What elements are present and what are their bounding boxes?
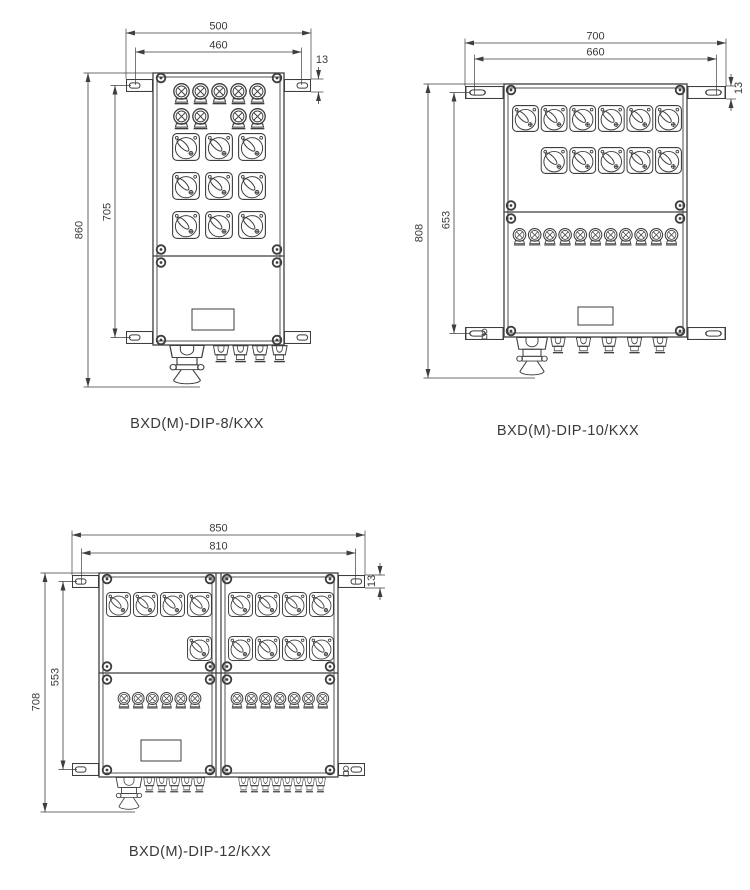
indicator-light [650, 229, 663, 245]
rotary-switch [229, 593, 253, 617]
rotary-switch [656, 106, 682, 132]
cover-bolt [223, 575, 232, 584]
indicator-light [528, 229, 541, 245]
indicator-light [132, 693, 144, 708]
cable-gland [233, 346, 248, 362]
rotary-switch [173, 173, 200, 200]
rotary-switch [188, 637, 212, 661]
diagram-bxdm-dip-12: 850 810 13 708 553 [31, 523, 386, 861]
main-cable-gland [116, 777, 142, 809]
diagram-bxdm-dip-8: 500 460 13 860 705 [74, 21, 329, 433]
dim-width-inner: 660 [586, 47, 604, 59]
enclosure-dip12 [72, 573, 364, 777]
indicator-light [174, 109, 189, 129]
rotary-switch [541, 148, 567, 174]
cable-gland [627, 338, 641, 353]
indicator-light [303, 693, 315, 708]
model-label: BXD(M)-DIP-12/KXX [129, 844, 271, 860]
dim-width-inner: 460 [209, 40, 227, 52]
dim-height-outer: 808 [414, 224, 426, 242]
rotary-switch [310, 637, 334, 661]
cable-gland [261, 778, 271, 792]
dim-width-outer: 850 [209, 523, 227, 535]
cable-gland [194, 778, 205, 792]
dim-bracket-offset: 13 [733, 82, 745, 94]
indicator-light [193, 84, 208, 104]
mounting-bracket [284, 80, 310, 92]
cable-gland [213, 346, 228, 362]
cover-bolt [326, 662, 335, 671]
dim-width-inner: 810 [209, 541, 227, 553]
cable-gland [250, 778, 260, 792]
indicator-light [274, 693, 286, 708]
cover-bolt [103, 662, 112, 671]
rotary-switch [283, 637, 307, 661]
cable-gland [272, 778, 282, 792]
indicator-light [175, 693, 187, 708]
rotary-switch [656, 148, 682, 174]
indicator-light [620, 229, 633, 245]
indicator-light [544, 229, 557, 245]
rotary-switch [239, 212, 266, 239]
cable-gland [602, 338, 616, 353]
main-cable-gland [517, 337, 548, 374]
indicator-light [604, 229, 617, 245]
cable-gland [169, 778, 180, 792]
dim-height-outer: 860 [74, 221, 86, 239]
indicator-light [212, 84, 227, 104]
cover-bolt [326, 675, 335, 684]
dim-height-inner: 653 [441, 211, 453, 229]
rotary-switch [188, 593, 212, 617]
cable-gland [551, 338, 565, 353]
indicator-light [250, 109, 265, 129]
model-label: BXD(M)-DIP-8/KXX [130, 416, 264, 432]
cable-gland [294, 778, 304, 792]
rotary-switch [173, 212, 200, 239]
indicator-light [635, 229, 648, 245]
nameplate [141, 740, 181, 761]
enclosure-body [99, 573, 338, 777]
rotary-switch [598, 106, 624, 132]
cover-bolt [326, 575, 335, 584]
mounting-bracket [338, 576, 364, 588]
indicator-light [574, 229, 587, 245]
drawing-canvas: 500 460 13 860 705 [0, 0, 750, 890]
indicator-light [193, 109, 208, 129]
rotary-switch [206, 212, 233, 239]
cable-gland [305, 778, 315, 792]
rotary-switch [134, 593, 158, 617]
indicator-light [174, 84, 189, 104]
rotary-switch [206, 134, 233, 161]
indicator-light [559, 229, 572, 245]
nameplate [578, 307, 613, 325]
dimension-lines-dip12: 850 810 13 708 553 [31, 523, 386, 813]
rotary-switch [229, 637, 253, 661]
indicator-light [147, 693, 159, 708]
rotary-switch [173, 134, 200, 161]
cover-bolt [157, 258, 166, 267]
cable-gland [156, 778, 167, 792]
diagram-bxdm-dip-10: 700 660 13 808 653 [414, 31, 746, 440]
indicator-light [231, 84, 246, 104]
indicator-light [589, 229, 602, 245]
cover-bolt [157, 245, 166, 254]
dim-bracket-offset: 13 [316, 54, 328, 66]
cable-gland [144, 778, 155, 792]
rotary-switch [627, 148, 653, 174]
rotary-switch [239, 134, 266, 161]
rotary-switch [256, 593, 280, 617]
model-label: BXD(M)-DIP-10/KXX [497, 423, 639, 439]
indicator-light [161, 693, 173, 708]
cover-bolt [223, 662, 232, 671]
cover-bolt [206, 575, 215, 584]
cover-bolt [223, 675, 232, 684]
indicator-light [231, 693, 243, 708]
rotary-switch [256, 637, 280, 661]
indicator-light [260, 693, 272, 708]
rotary-switch [513, 106, 539, 132]
cover-bolt [157, 74, 166, 83]
rotary-switch [570, 106, 596, 132]
components-dip8 [170, 84, 287, 384]
rotary-switch [570, 148, 596, 174]
dim-bracket-offset: 13 [366, 575, 378, 587]
indicator-light [250, 84, 265, 104]
rotary-switch [627, 106, 653, 132]
enclosure-door [157, 77, 280, 341]
cable-gland [239, 778, 249, 792]
rotary-switch [239, 173, 266, 200]
indicator-light [317, 693, 329, 708]
cover-bolt [206, 662, 215, 671]
cover-bolt [157, 336, 166, 345]
enclosure-dip8 [126, 73, 310, 345]
mounting-bracket [466, 87, 504, 99]
indicator-light [513, 229, 526, 245]
cable-gland [653, 338, 667, 353]
drawing-sheet: 500 460 13 860 705 [0, 0, 750, 890]
cable-gland [272, 346, 287, 362]
dimension-lines-dip10: 700 660 13 808 653 [414, 31, 746, 379]
cable-gland [252, 346, 267, 362]
components-dip10 [513, 106, 682, 375]
cable-gland [576, 338, 590, 353]
rotary-switch [107, 593, 131, 617]
ground-screw [344, 766, 349, 771]
indicator-light [231, 109, 246, 129]
cover-bolt [103, 675, 112, 684]
cover-bolt [103, 575, 112, 584]
indicator-light [118, 693, 130, 708]
mounting-bracket [284, 332, 310, 344]
indicator-light [189, 693, 201, 708]
indicator-light [288, 693, 300, 708]
mounting-bracket [338, 764, 364, 776]
indicator-light [245, 693, 257, 708]
indicator-light [665, 229, 678, 245]
dim-width-outer: 700 [586, 31, 604, 43]
rotary-switch [541, 106, 567, 132]
nameplate [192, 309, 234, 330]
rotary-switch [598, 148, 624, 174]
rotary-switch [283, 593, 307, 617]
cover-bolt [206, 675, 215, 684]
dim-height-outer: 708 [31, 693, 43, 711]
dim-height-inner: 705 [102, 203, 114, 221]
rotary-switch [206, 173, 233, 200]
main-cable-gland [170, 345, 204, 383]
dim-height-inner: 553 [50, 668, 62, 686]
mounting-bracket [688, 87, 726, 99]
rotary-switch [161, 593, 185, 617]
rotary-switch [310, 593, 334, 617]
cable-gland [283, 778, 293, 792]
cable-gland [316, 778, 326, 792]
cable-gland [181, 778, 192, 792]
dim-width-outer: 500 [209, 21, 227, 33]
mounting-bracket [688, 328, 726, 340]
